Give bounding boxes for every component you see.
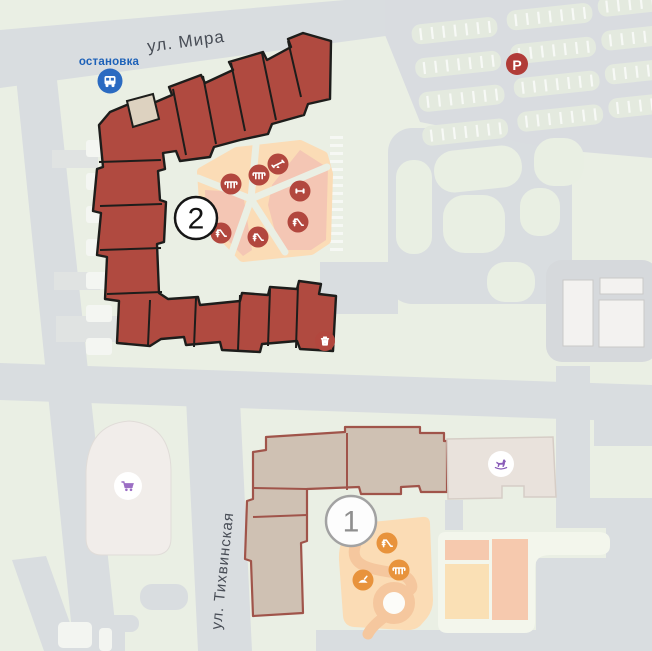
slide-icon bbox=[288, 212, 309, 233]
parking-p-icon: P bbox=[506, 53, 528, 75]
small-structure bbox=[99, 628, 112, 651]
white-buildings-block bbox=[546, 260, 652, 362]
slide-icon bbox=[248, 227, 269, 248]
rocking-horse-icon bbox=[488, 451, 514, 477]
parking-lot: P bbox=[385, 0, 652, 158]
parking-p-label: P bbox=[512, 57, 521, 73]
building-1-label[interactable]: 1 bbox=[326, 496, 376, 546]
bench-icon bbox=[221, 174, 242, 195]
playground-circle-area bbox=[383, 592, 405, 614]
fitness-icon bbox=[290, 181, 311, 202]
trash-icon bbox=[315, 331, 335, 351]
bench-icon bbox=[389, 560, 410, 581]
small-structure bbox=[58, 622, 92, 648]
seesaw-icon bbox=[268, 154, 289, 175]
supermarket-building bbox=[86, 421, 171, 555]
playground-upper bbox=[198, 145, 328, 258]
sandbox-icon bbox=[353, 570, 374, 591]
bench-icon bbox=[249, 165, 270, 186]
bus-stop-label: остановка bbox=[79, 56, 140, 68]
building-1-number: 1 bbox=[343, 506, 360, 539]
map-canvas: P bbox=[0, 0, 652, 651]
building-2-label[interactable]: 2 bbox=[175, 197, 217, 239]
residential-complex-map: P bbox=[0, 0, 652, 651]
shopping-cart-icon bbox=[114, 472, 142, 500]
bus-icon bbox=[98, 69, 123, 94]
building-2-number: 2 bbox=[188, 203, 205, 236]
slide-icon bbox=[377, 533, 398, 554]
kindergarten-building bbox=[447, 437, 556, 499]
